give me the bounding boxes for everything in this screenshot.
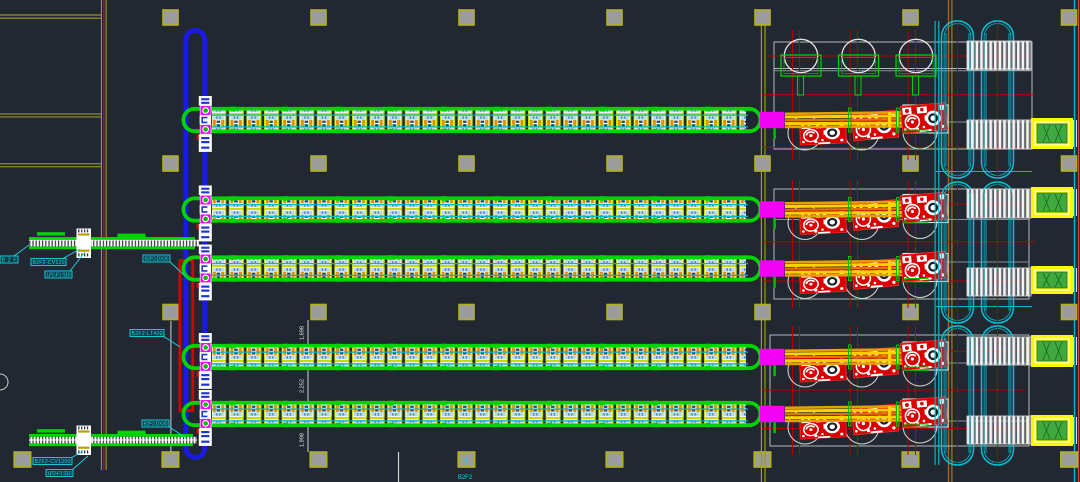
svg-text:B2F2-CV120: B2F2-CV120 <box>33 260 65 266</box>
svg-text:1,998: 1,998 <box>300 433 306 447</box>
svg-text:1,698: 1,698 <box>300 326 306 340</box>
svg-text:LP2-F1 S10: LP2-F1 S10 <box>48 471 72 477</box>
svg-text:B2F2-CV1200: B2F2-CV1200 <box>35 459 71 465</box>
svg-text:LP2-F1 S10: LP2-F1 S10 <box>47 272 71 278</box>
svg-text:2,252: 2,252 <box>300 379 306 393</box>
svg-text:5: 5 <box>465 458 469 465</box>
svg-text:B2F2: B2F2 <box>458 475 473 481</box>
svg-text:B2F2-DX30: B2F2-DX30 <box>145 256 169 262</box>
svg-text:B2F2-DX30: B2F2-DX30 <box>144 421 168 427</box>
svg-text:B2F2-LT400: B2F2-LT400 <box>132 331 163 337</box>
svg-text:B2F: B2F <box>2 257 17 263</box>
